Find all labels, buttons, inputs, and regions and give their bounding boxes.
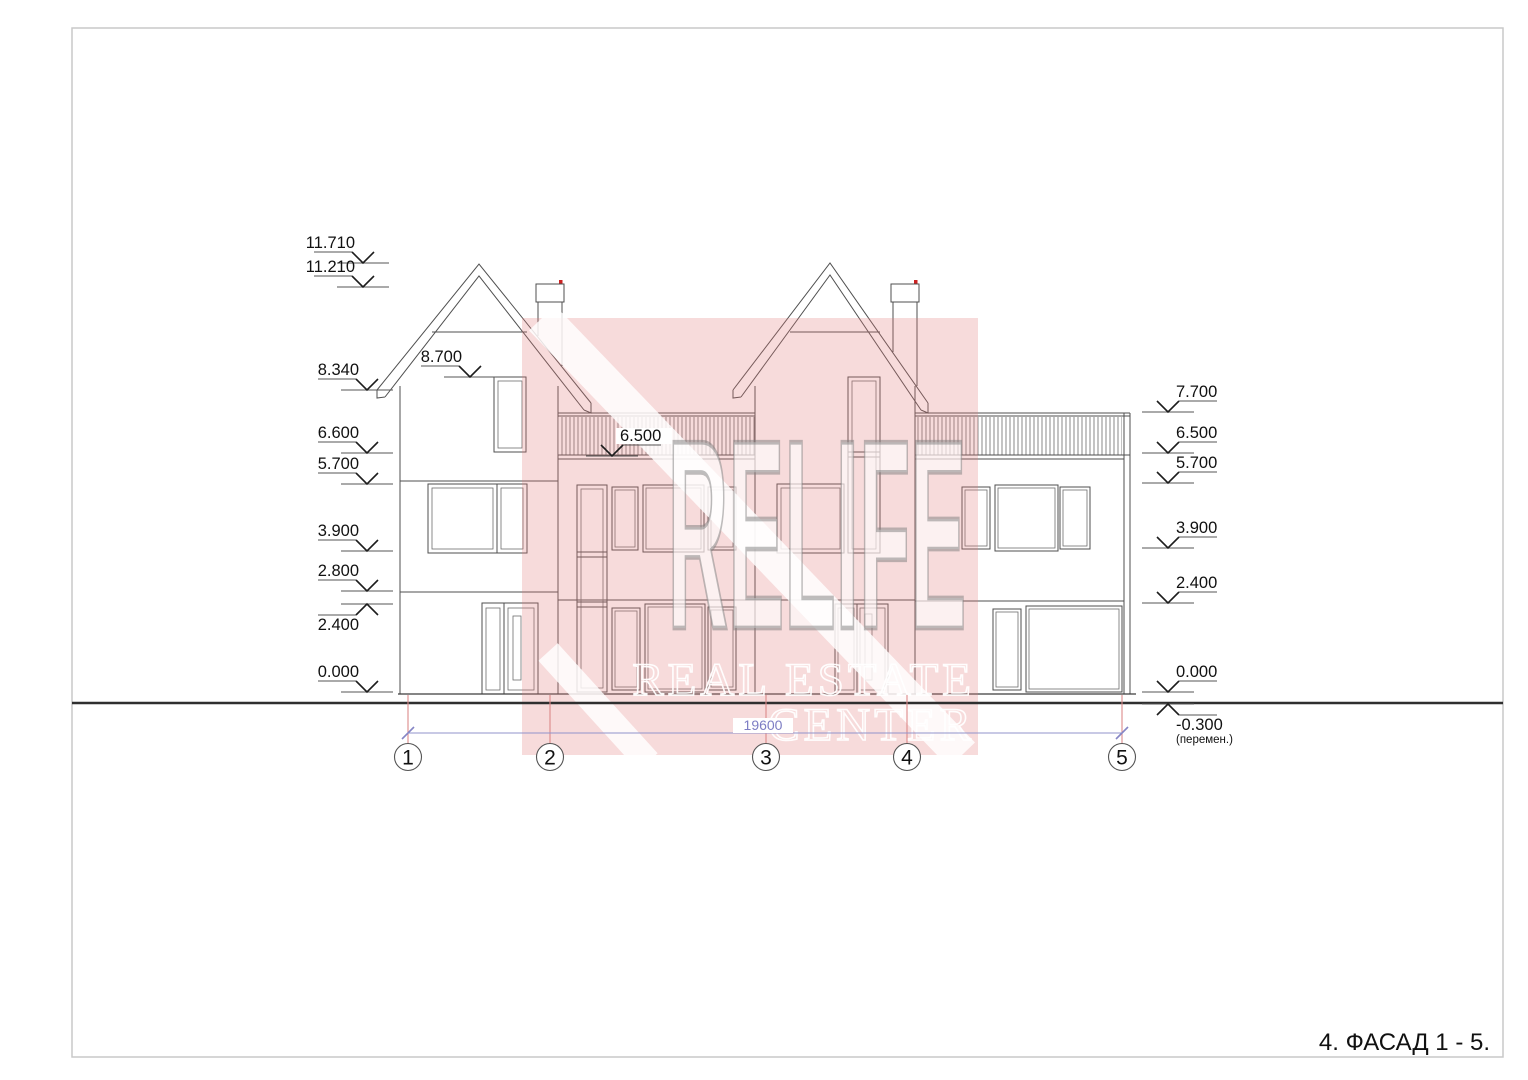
elevation-label: 6.500 [1176, 424, 1217, 442]
elevation-label: 7.700 [1176, 383, 1217, 401]
axis-bubble-label: 1 [402, 747, 414, 770]
elevation-label: 11.210 [306, 258, 355, 276]
drawing-sheet: RELIFE REAL ESTATE CENTER 12345 19600 11… [0, 0, 1528, 1080]
elevation-label: 0.000 [1176, 663, 1217, 681]
elevation-label: -0.300 [1176, 716, 1223, 734]
elevation-label: 5.700 [1176, 454, 1217, 472]
elevation-label: 3.900 [318, 522, 359, 540]
elevation-label: 8.340 [318, 361, 359, 379]
watermark-brand-text: RELIFE [668, 385, 967, 686]
axis-bubble-label: 2 [544, 747, 556, 770]
watermark-subtitle-2: CENTER [768, 699, 975, 751]
axis-bubble-label: 3 [760, 747, 772, 770]
axis-bubble-label: 4 [901, 747, 913, 770]
axis-bubble-label: 5 [1116, 747, 1128, 770]
elevation-label: 2.400 [1176, 574, 1217, 592]
chimney-marker-dot [914, 280, 918, 284]
dimension-label: 19600 [744, 717, 783, 733]
elevation-label: 6.500 [620, 427, 661, 445]
drawing-title: 4. ФАСАД 1 - 5. [1319, 1029, 1490, 1056]
elevation-label: 8.700 [421, 348, 462, 366]
elevation-label: 2.800 [318, 562, 359, 580]
elevation-sublabel: (перемен.) [1176, 734, 1233, 746]
chimney-marker-dot [559, 280, 563, 284]
elevation-label: 0.000 [318, 663, 359, 681]
facade-drawing-svg: RELIFE REAL ESTATE CENTER 12345 19600 11… [0, 0, 1528, 1080]
elevation-label: 2.400 [318, 616, 359, 634]
watermark: RELIFE REAL ESTATE CENTER [522, 318, 978, 762]
elevation-label: 3.900 [1176, 519, 1217, 537]
elevation-label: 11.710 [306, 234, 355, 252]
elevation-label: 6.600 [318, 424, 359, 442]
elevation-label: 5.700 [318, 455, 359, 473]
